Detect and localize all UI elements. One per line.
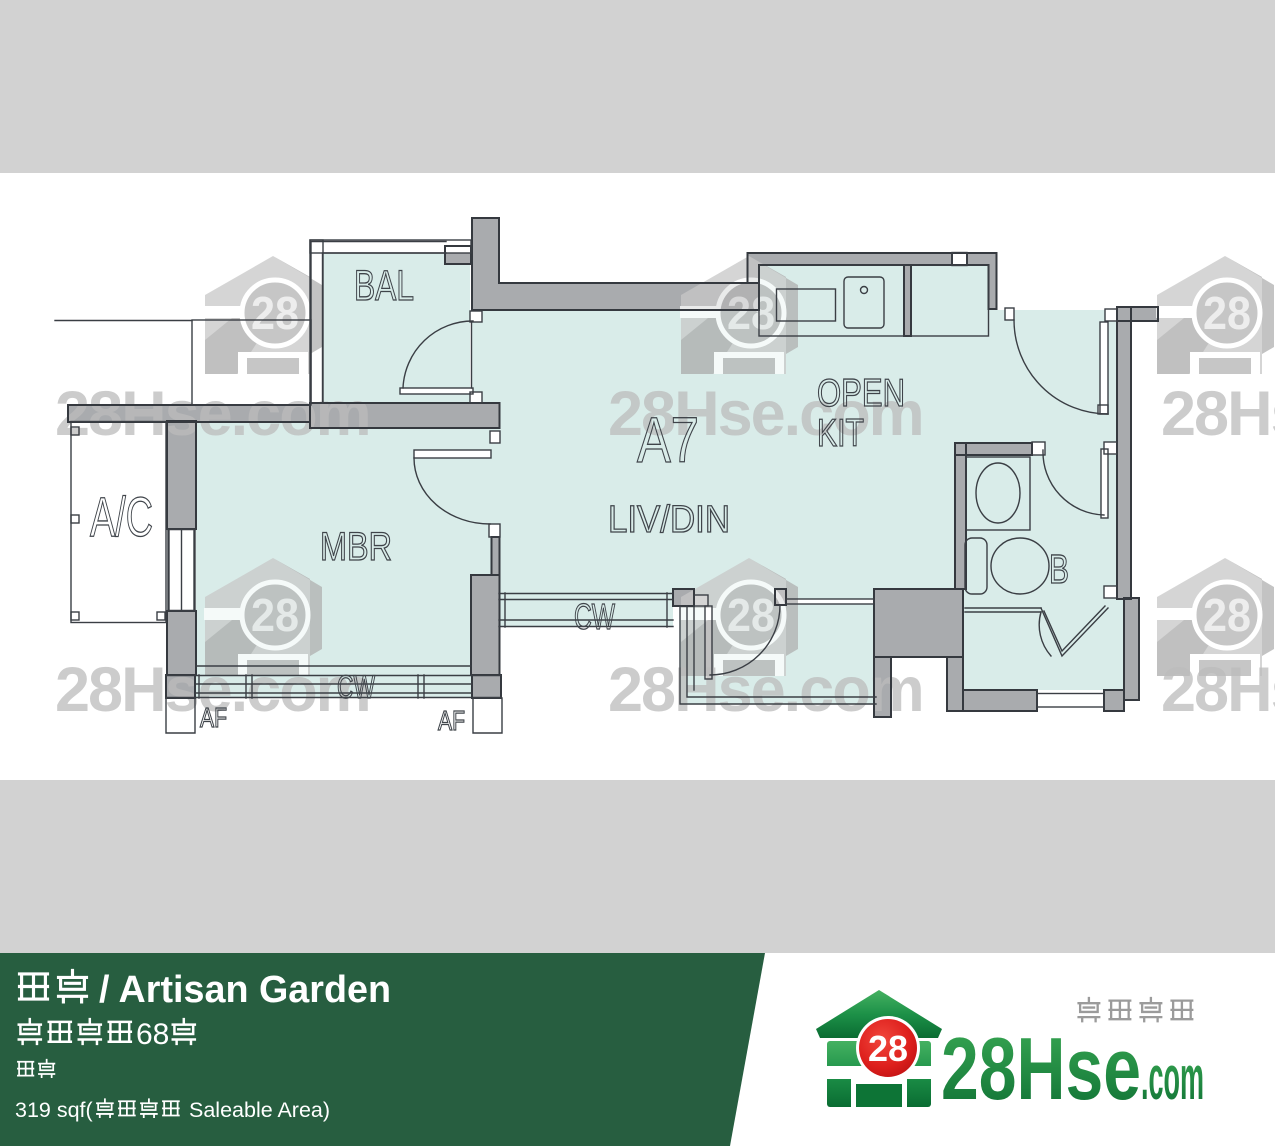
svg-text:CW: CW (574, 596, 615, 637)
svg-text:BAL: BAL (354, 262, 414, 310)
svg-text:/ Artisan Garden: / Artisan Garden (99, 969, 391, 1011)
svg-text:LIV/DIN: LIV/DIN (608, 499, 730, 541)
svg-text:AF: AF (200, 702, 227, 733)
svg-text:B: B (1049, 546, 1069, 592)
svg-text:OPEN: OPEN (817, 372, 905, 415)
svg-text:CW: CW (337, 669, 376, 705)
svg-text:AF: AF (438, 705, 465, 736)
svg-text:A7: A7 (637, 404, 699, 476)
svg-text:319 sqf(: 319 sqf( (15, 1098, 94, 1122)
svg-text:MBR: MBR (320, 525, 392, 569)
svg-text:68: 68 (136, 1018, 169, 1051)
svg-text:Saleable Area): Saleable Area) (189, 1098, 330, 1122)
svg-text:A/C: A/C (90, 485, 153, 548)
svg-text:.com: .com (1141, 1044, 1204, 1113)
svg-text:KIT: KIT (817, 412, 864, 455)
svg-text:28Hse: 28Hse (941, 1019, 1141, 1118)
svg-text:28: 28 (868, 1028, 908, 1069)
